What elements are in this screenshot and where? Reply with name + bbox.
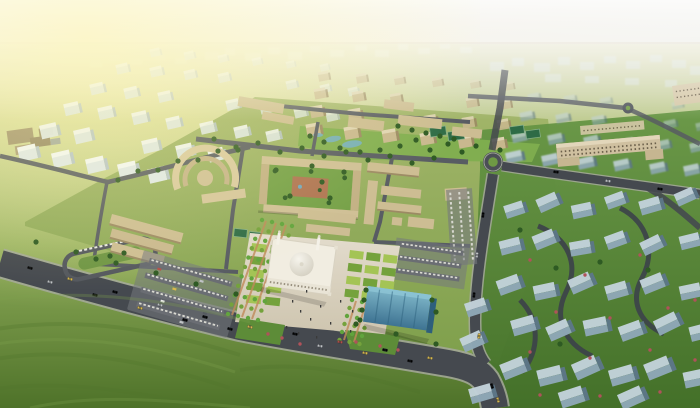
aerial-masterplan-render bbox=[0, 0, 700, 408]
sun-glow-overlay bbox=[0, 0, 480, 300]
roundabout-main bbox=[483, 152, 503, 172]
